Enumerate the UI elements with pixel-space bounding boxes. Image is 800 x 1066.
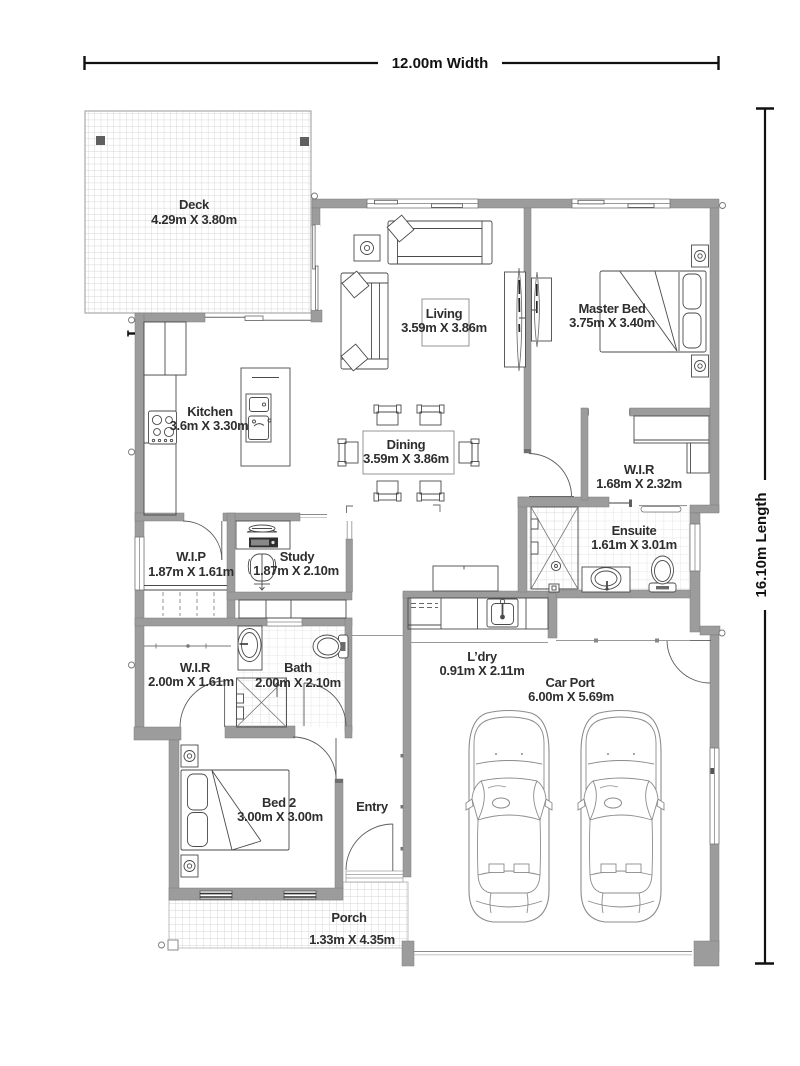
svg-text:4.29m X 3.80m: 4.29m X 3.80m — [151, 212, 237, 227]
svg-text:Dining: Dining — [387, 437, 426, 452]
svg-text:W.I.P: W.I.P — [176, 549, 206, 564]
svg-text:2.00m X 1.61m: 2.00m X 1.61m — [148, 674, 234, 689]
svg-text:Entry: Entry — [356, 799, 389, 814]
svg-text:W.I.R: W.I.R — [624, 462, 655, 477]
svg-text:1.87m X 2.10m: 1.87m X 2.10m — [253, 563, 339, 578]
svg-text:Car Port: Car Port — [546, 675, 596, 690]
svg-text:1.68m X 2.32m: 1.68m X 2.32m — [596, 476, 682, 491]
svg-text:1.61m X 3.01m: 1.61m X 3.01m — [591, 537, 677, 552]
svg-text:Deck: Deck — [179, 197, 210, 212]
svg-text:1.87m X 1.61m: 1.87m X 1.61m — [148, 564, 234, 579]
svg-text:3.00m X 3.00m: 3.00m X 3.00m — [237, 809, 323, 824]
svg-text:W.I.R: W.I.R — [180, 660, 211, 675]
svg-text:Study: Study — [280, 549, 316, 564]
svg-text:L’dry: L’dry — [467, 649, 498, 664]
svg-text:3.6m X 3.30m: 3.6m X 3.30m — [170, 418, 249, 433]
svg-text:Living: Living — [426, 306, 463, 321]
svg-text:0.91m X 2.11m: 0.91m X 2.11m — [440, 663, 525, 678]
svg-text:6.00m X 5.69m: 6.00m X 5.69m — [528, 689, 614, 704]
svg-text:3.75m X 3.40m: 3.75m X 3.40m — [569, 315, 655, 330]
svg-text:Porch: Porch — [331, 910, 367, 925]
svg-text:16.10m Length: 16.10m Length — [753, 492, 770, 597]
svg-text:1.33m X 4.35m: 1.33m X 4.35m — [309, 932, 395, 947]
svg-text:3.59m X 3.86m: 3.59m X 3.86m — [401, 320, 487, 335]
svg-text:Bath: Bath — [284, 660, 312, 675]
svg-text:Bed 2: Bed 2 — [262, 795, 296, 810]
svg-text:Master Bed: Master Bed — [578, 301, 645, 316]
svg-text:2.00m X 2.10m: 2.00m X 2.10m — [255, 675, 341, 690]
svg-text:Ensuite: Ensuite — [612, 523, 657, 538]
svg-text:Kitchen: Kitchen — [187, 404, 233, 419]
svg-text:3.59m X 3.86m: 3.59m X 3.86m — [363, 451, 449, 466]
svg-text:12.00m Width: 12.00m Width — [392, 55, 489, 72]
